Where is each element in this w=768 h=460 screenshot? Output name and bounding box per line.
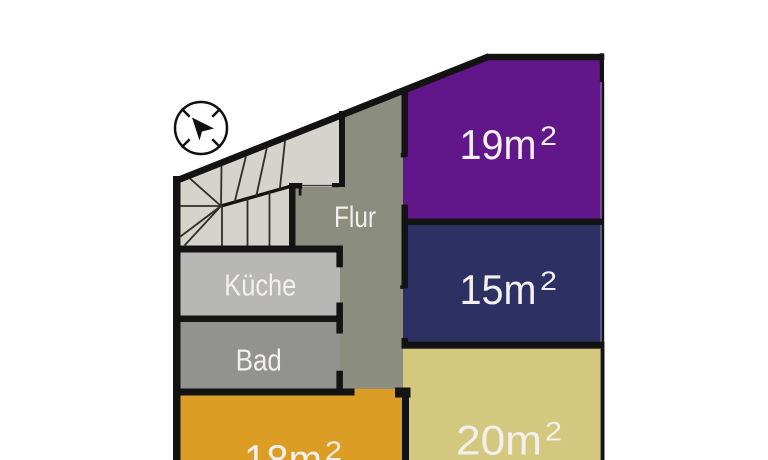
svg-text:2: 2: [540, 121, 557, 151]
svg-text:2: 2: [540, 266, 557, 296]
svg-text:18m: 18m: [244, 436, 322, 460]
svg-text:20m: 20m: [456, 417, 542, 460]
svg-text:Küche: Küche: [224, 268, 296, 303]
svg-text:15m: 15m: [460, 266, 537, 313]
svg-text:Bad: Bad: [236, 342, 282, 377]
svg-text:Flur: Flur: [334, 201, 376, 234]
svg-text:19m: 19m: [460, 121, 537, 168]
svg-text:2: 2: [545, 416, 562, 446]
svg-text:2: 2: [325, 436, 342, 460]
